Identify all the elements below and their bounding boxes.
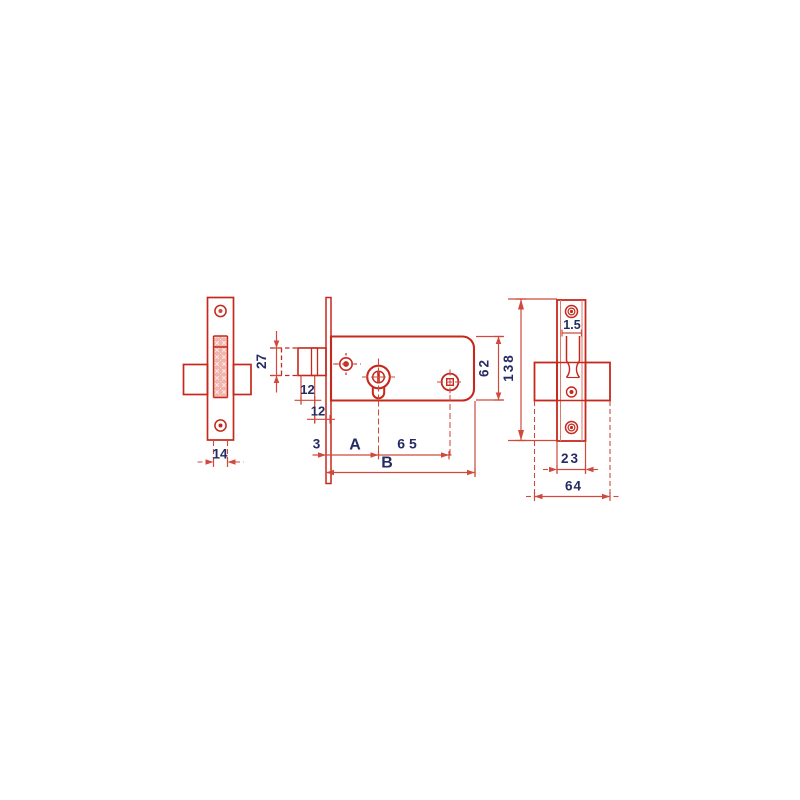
- dim-label-12b: 12: [311, 404, 325, 419]
- screenshot-canvas: 14: [0, 0, 800, 800]
- dimension-3-A-65: 3 A 65: [313, 395, 452, 459]
- roller-bolt-channel: [567, 336, 580, 378]
- follower-hole-icon: [437, 370, 463, 396]
- dim-label-138: 138: [501, 353, 516, 382]
- dim-label-3: 3: [313, 437, 321, 452]
- left-bolt-channel: [214, 336, 228, 398]
- dim-label-65: 65: [397, 436, 421, 452]
- screw-icon: [333, 353, 361, 375]
- dim-label-14: 14: [212, 447, 228, 462]
- left-view: 14: [184, 298, 252, 468]
- middle-view: 27 12 12 3 A 65: [254, 298, 557, 484]
- dimension-1-5: 1.5: [562, 318, 582, 337]
- dimension-138: 138: [501, 299, 557, 441]
- screw-icon: [215, 420, 226, 431]
- dim-label-23: 23: [561, 451, 580, 466]
- dimension-62: 62: [476, 337, 504, 401]
- left-bolt-wing-right: [234, 365, 252, 395]
- right-view: 1.5 23 64: [526, 300, 619, 501]
- dim-label-B: B: [381, 455, 393, 472]
- bolt-hidden-extent: [270, 348, 298, 376]
- screw-icon: [567, 387, 577, 397]
- dim-label-27: 27: [254, 354, 269, 369]
- left-bolt-wing-left: [184, 365, 208, 395]
- lock-technical-drawing: 14: [0, 0, 800, 800]
- dim-label-1-5: 1.5: [563, 318, 580, 332]
- dim-label-62: 62: [477, 358, 492, 377]
- euro-cylinder-keyhole-icon: [362, 359, 395, 400]
- dim-label-12a: 12: [300, 382, 314, 397]
- screw-icon: [566, 306, 578, 318]
- right-bolt-wing-right: [586, 363, 611, 401]
- dimension-14: 14: [198, 441, 244, 467]
- dimension-23: 23: [543, 441, 600, 474]
- dim-label-64: 64: [565, 479, 582, 494]
- dim-label-A: A: [349, 437, 361, 454]
- right-bolt-wing-left: [535, 363, 558, 401]
- screw-icon: [566, 422, 578, 434]
- screw-icon: [215, 305, 226, 316]
- dimension-27: 27: [254, 331, 282, 393]
